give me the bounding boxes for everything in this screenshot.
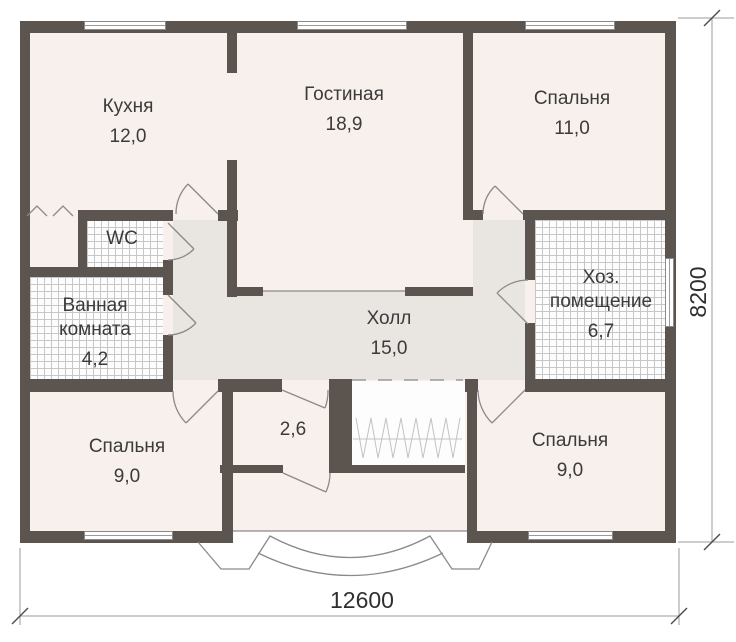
room-area-hall: 15,0 (309, 337, 469, 361)
door-bathroom (168, 295, 196, 335)
room-label-bedroom-bottom-left: Спальня 9,0 (47, 435, 207, 489)
room-area-bedroom-bottom-right: 9,0 (490, 459, 650, 483)
door-kitchen (176, 184, 218, 214)
wardrobe-hanger-hatch (356, 418, 460, 458)
door-bedroom-bottom-left (173, 391, 218, 423)
room-area-utility: 6,7 (541, 320, 661, 344)
door-wc (168, 223, 194, 260)
dimension-height-label: 8200 (686, 252, 710, 332)
porch-step-arc (258, 553, 443, 576)
room-label-bathroom: Ванная комната 4,2 (38, 294, 152, 372)
room-name-bedroom-bottom-right: Спальня (490, 429, 650, 453)
room-area-bedroom-top-right: 11,0 (492, 117, 652, 141)
room-area-bedroom-bottom-left: 9,0 (47, 465, 207, 489)
room-name-bedroom-bottom-left: Спальня (47, 435, 207, 459)
room-label-bedroom-top-right: Спальня 11,0 (492, 87, 652, 141)
room-name-wc: WC (82, 227, 162, 251)
room-label-hall: Холл 15,0 (309, 307, 469, 361)
door-entry-top (282, 390, 328, 408)
room-name-bedroom-top-right: Спальня (492, 87, 652, 111)
room-name-kitchen: Кухня (48, 95, 208, 119)
room-name-bathroom: Ванная комната (38, 294, 152, 342)
dimension-width-label: 12600 (302, 588, 422, 612)
room-label-wc: WC (82, 227, 162, 251)
room-label-kitchen: Кухня 12,0 (48, 95, 208, 149)
floor-plan: Кухня 12,0 Гостиная 18,9 Спальня 11,0 WC… (0, 0, 736, 642)
room-name-utility: Хоз. помещение (541, 266, 661, 314)
door-utility (497, 280, 528, 324)
kitchen-chevron-marks (27, 206, 73, 216)
room-label-living: Гостиная 18,9 (264, 83, 424, 137)
room-label-entry: 2,6 (253, 418, 333, 442)
room-area-living: 18,9 (264, 113, 424, 137)
door-entry-bottom (283, 473, 330, 492)
room-name-living: Гостиная (264, 83, 424, 107)
room-name-hall: Холл (309, 307, 469, 331)
door-bedroom-bottom-right (478, 390, 525, 423)
room-label-bedroom-bottom-right: Спальня 9,0 (490, 429, 650, 483)
room-area-kitchen: 12,0 (48, 125, 208, 149)
room-area-entry: 2,6 (253, 418, 333, 442)
room-label-utility: Хоз. помещение 6,7 (541, 266, 661, 344)
room-area-bathroom: 4,2 (38, 348, 152, 372)
porch-outline (198, 536, 492, 569)
door-bedroom-top-right (483, 186, 523, 214)
